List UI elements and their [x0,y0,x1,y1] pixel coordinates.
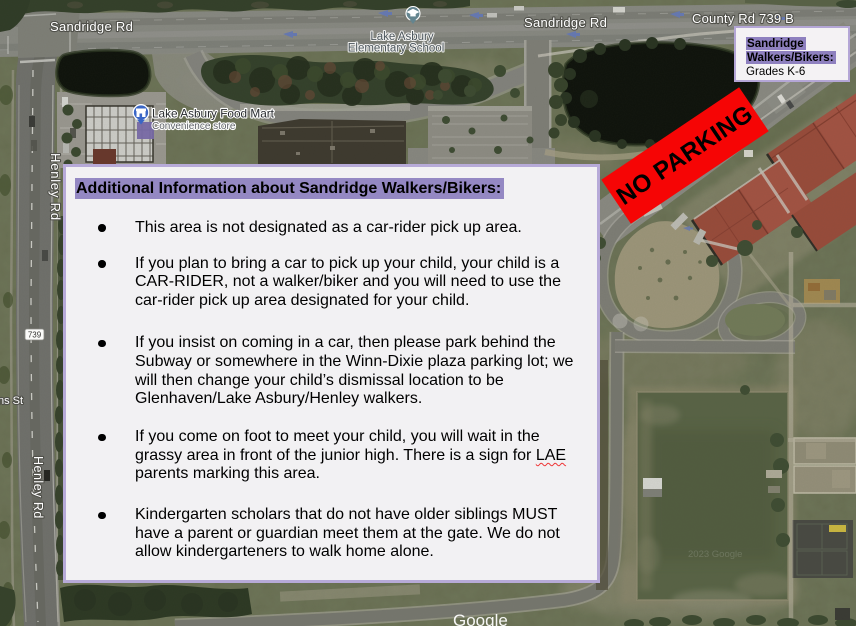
svg-text:Lake Asbury: Lake Asbury [370,31,434,43]
svg-text:2023 Google: 2023 Google [688,549,742,560]
svg-text:Google: Google [453,611,508,626]
svg-text:Henley Rd: Henley Rd [48,153,63,221]
svg-text:Elementary School: Elementary School [348,43,445,55]
svg-text:Sandridge Rd: Sandridge Rd [50,19,133,34]
svg-text:ns St: ns St [0,395,23,407]
svg-text:County Rd 739 B: County Rd 739 B [692,11,794,26]
svg-text:Convenience store: Convenience store [152,121,236,132]
svg-text:Sandridge Rd: Sandridge Rd [524,15,607,30]
svg-text:Lake Asbury Food Mart: Lake Asbury Food Mart [152,107,275,121]
svg-text:Henley Rd: Henley Rd [31,456,45,519]
svg-text:739: 739 [28,331,42,340]
